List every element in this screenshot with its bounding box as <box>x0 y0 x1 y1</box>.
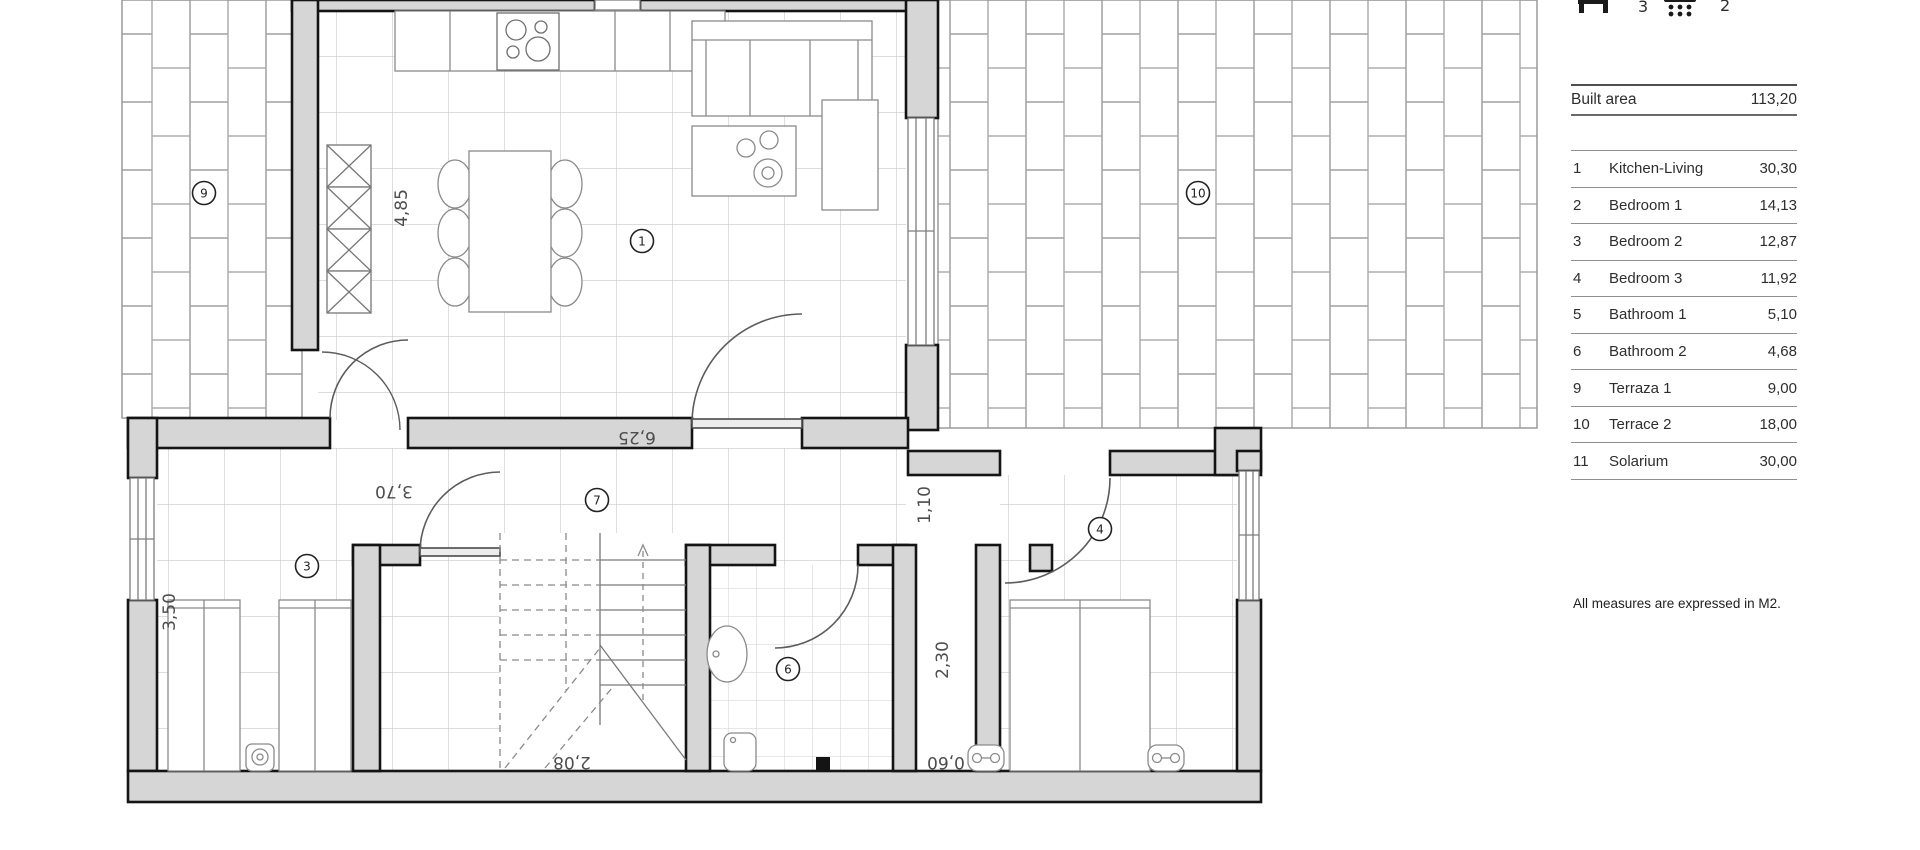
room-name: Kitchen-Living <box>1609 160 1759 177</box>
svg-text:1: 1 <box>638 235 646 249</box>
room-number: 11 <box>1571 453 1609 470</box>
dim-kitchen-width: 6,25 <box>618 427 656 447</box>
room-area: 18,00 <box>1759 416 1797 433</box>
nightstand-left <box>968 745 1004 771</box>
dining-table <box>438 151 582 312</box>
toilet-icon <box>724 733 756 771</box>
svg-text:6: 6 <box>784 663 792 677</box>
built-area-value: 113,20 <box>1751 91 1797 109</box>
marker-terrace-2: 10 <box>1187 182 1210 205</box>
svg-text:9: 9 <box>200 187 208 201</box>
cooktop-icon <box>497 13 559 70</box>
table-row: 2 Bedroom 1 14,13 <box>1571 188 1797 225</box>
kitchen-counter <box>395 11 725 71</box>
measures-note: All measures are expressed in M2. <box>1573 596 1781 611</box>
room-number: 5 <box>1571 306 1609 323</box>
table-row: 4 Bedroom 3 11,92 <box>1571 261 1797 298</box>
table-row: 1 Kitchen-Living 30,30 <box>1571 151 1797 188</box>
top-wall-window <box>595 0 640 10</box>
table-row: 9 Terraza 1 9,00 <box>1571 370 1797 407</box>
marker-kitchen-living: 1 <box>631 230 654 253</box>
svg-text:3: 3 <box>303 560 311 574</box>
dim-bedroom2-depth: 3,50 <box>160 593 180 631</box>
dim-shaft-depth: 2,30 <box>933 641 953 679</box>
dim-shaft-width: 0,60 <box>927 752 965 772</box>
room-area: 12,87 <box>1759 233 1797 250</box>
bathrooms-count: 2 <box>1720 0 1730 15</box>
room-number: 10 <box>1571 416 1609 433</box>
table-row: 5 Bathroom 1 5,10 <box>1571 297 1797 334</box>
svg-text:10: 10 <box>1190 187 1205 201</box>
svg-text:7: 7 <box>593 494 601 508</box>
table-row: 6 Bathroom 2 4,68 <box>1571 334 1797 371</box>
room-name: Bedroom 2 <box>1609 233 1759 250</box>
header-summary-icons: 3 2 <box>1578 0 1730 16</box>
room-area: 11,92 <box>1761 270 1797 287</box>
bed-double <box>1010 600 1150 771</box>
room-number: 9 <box>1571 380 1609 397</box>
dim-stairs-width: 2,08 <box>553 752 591 772</box>
marker-bedroom-2: 3 <box>296 555 319 578</box>
room-name: Terraza 1 <box>1609 380 1768 397</box>
room-number: 3 <box>1571 233 1609 250</box>
room-area: 9,00 <box>1768 380 1797 397</box>
wardrobe-icon <box>327 145 371 313</box>
nightstand-right <box>1148 745 1184 771</box>
room-name: Bedroom 1 <box>1609 197 1759 214</box>
bed-single-2 <box>279 600 351 771</box>
room-name: Bedroom 3 <box>1609 270 1761 287</box>
dim-kitchen-depth: 4,85 <box>392 189 412 227</box>
bathroom-sink-icon <box>707 626 747 682</box>
marker-hall: 7 <box>586 489 609 512</box>
room-number: 6 <box>1571 343 1609 360</box>
table-row: 10 Terrace 2 18,00 <box>1571 407 1797 444</box>
room-name: Terrace 2 <box>1609 416 1759 433</box>
room-number: 2 <box>1571 197 1609 214</box>
built-area-label: Built area <box>1571 91 1636 109</box>
sink-island-icon <box>692 126 796 196</box>
table-row: 3 Bedroom 2 12,87 <box>1571 224 1797 261</box>
nightstand-bedroom2 <box>246 744 274 771</box>
built-area-row: Built area 113,20 <box>1571 84 1797 116</box>
bed-icon <box>1578 0 1608 13</box>
marker-bedroom-3: 4 <box>1089 518 1112 541</box>
room-area: 4,68 <box>1768 343 1797 360</box>
shower-icon <box>1664 0 1696 16</box>
terrace-2-floor <box>938 0 1537 428</box>
marker-terrace-1: 9 <box>193 182 216 205</box>
marker-bathroom-2: 6 <box>777 658 800 681</box>
svg-text:4: 4 <box>1096 523 1104 537</box>
dim-bedroom2-width: 3,70 <box>375 481 413 501</box>
room-area: 5,10 <box>1768 306 1797 323</box>
floor-plan-page: { "header_icons": { "bedrooms_count": "3… <box>0 0 1920 850</box>
dim-bedroom3-door: 1,10 <box>915 486 935 524</box>
room-name: Solarium <box>1609 453 1759 470</box>
room-name: Bathroom 2 <box>1609 343 1768 360</box>
tv-cabinet <box>822 100 878 210</box>
terrace-1-floor <box>122 0 302 418</box>
room-area: 14,13 <box>1759 197 1797 214</box>
bedroom3-right-window <box>1239 471 1259 600</box>
wall-notch <box>816 757 830 772</box>
table-row: 11 Solarium 30,00 <box>1571 443 1797 480</box>
room-name: Bathroom 1 <box>1609 306 1768 323</box>
room-area: 30,00 <box>1759 453 1797 470</box>
room-number: 1 <box>1571 160 1609 177</box>
bedrooms-count: 3 <box>1638 0 1648 16</box>
room-area-rows: 1 Kitchen-Living 30,30 2 Bedroom 1 14,13… <box>1571 150 1797 480</box>
bedroom2-left-window <box>130 478 154 600</box>
room-number: 4 <box>1571 270 1609 287</box>
kitchen-right-window <box>908 118 934 345</box>
room-area: 30,30 <box>1759 160 1797 177</box>
